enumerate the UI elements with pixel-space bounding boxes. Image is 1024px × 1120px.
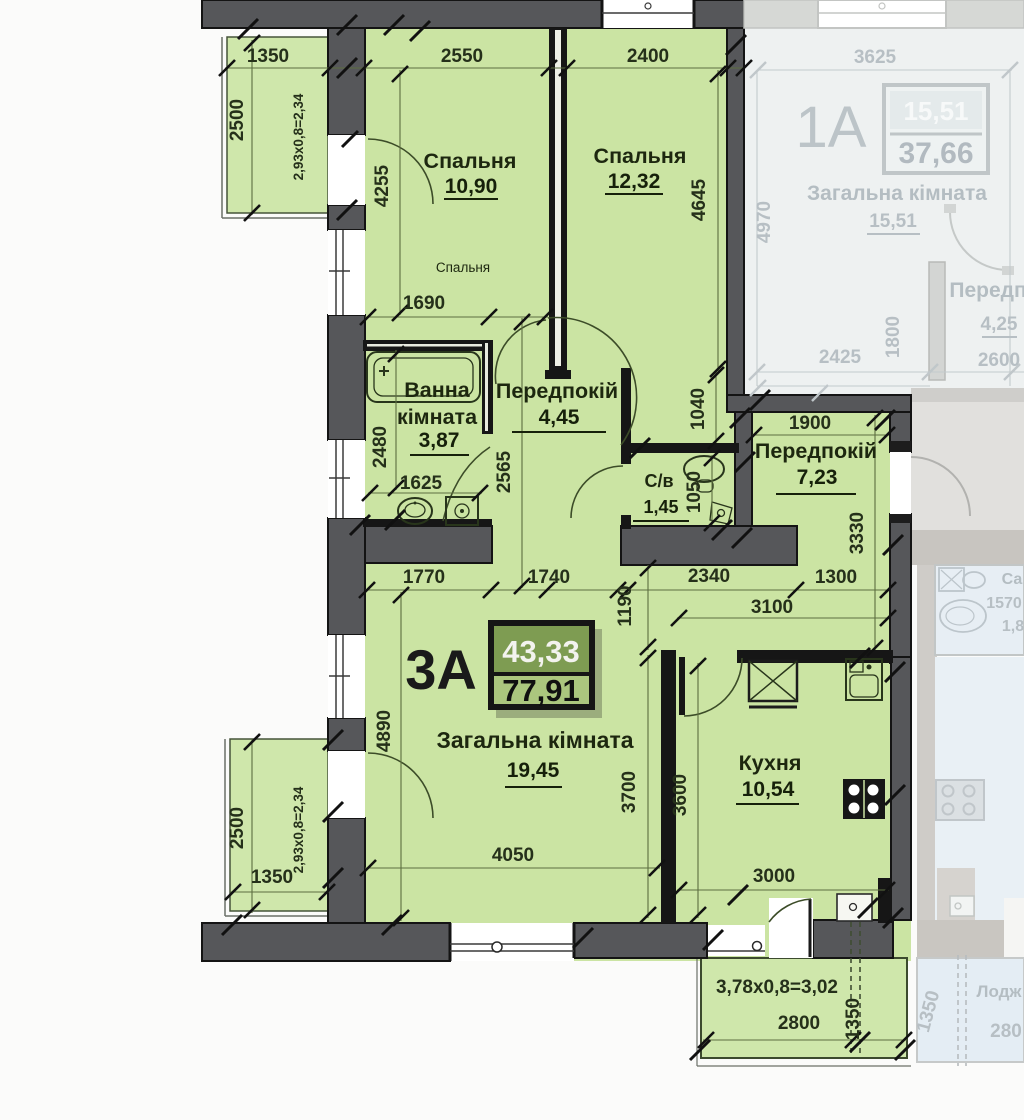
- svg-text:1190: 1190: [615, 585, 636, 626]
- svg-text:2,93х0,8=2,34: 2,93х0,8=2,34: [291, 786, 306, 873]
- svg-text:4,25: 4,25: [981, 314, 1018, 335]
- svg-text:10,54: 10,54: [742, 778, 795, 801]
- svg-text:2600: 2600: [978, 350, 1020, 371]
- svg-text:Загальна кімната: Загальна кімната: [436, 727, 633, 753]
- svg-text:1900: 1900: [789, 413, 831, 434]
- svg-text:1300: 1300: [815, 567, 857, 588]
- svg-text:4970: 4970: [754, 201, 775, 243]
- svg-text:3625: 3625: [854, 47, 897, 68]
- svg-text:2480: 2480: [370, 426, 391, 468]
- svg-text:4645: 4645: [689, 178, 710, 221]
- svg-text:3,78х0,8=3,02: 3,78х0,8=3,02: [716, 977, 838, 998]
- svg-text:3700: 3700: [619, 771, 640, 813]
- svg-text:3,87: 3,87: [419, 429, 460, 452]
- svg-text:Лодж: Лодж: [977, 982, 1023, 1001]
- svg-text:2500: 2500: [227, 807, 248, 849]
- svg-text:3000: 3000: [753, 866, 795, 887]
- svg-text:3100: 3100: [751, 597, 793, 618]
- svg-text:280: 280: [990, 1021, 1022, 1042]
- svg-text:4255: 4255: [372, 164, 393, 207]
- svg-text:10,90: 10,90: [445, 175, 498, 198]
- svg-text:Кухня: Кухня: [739, 751, 802, 775]
- svg-text:кімната: кімната: [397, 405, 478, 429]
- svg-text:Спальня: Спальня: [436, 260, 490, 275]
- svg-text:Передп: Передп: [949, 279, 1024, 302]
- svg-text:1050: 1050: [684, 471, 705, 513]
- svg-text:1,45: 1,45: [643, 497, 678, 517]
- svg-text:Передпокій: Передпокій: [496, 379, 618, 403]
- svg-text:2565: 2565: [494, 450, 515, 493]
- svg-text:1,8: 1,8: [1002, 618, 1024, 635]
- svg-text:Са: Са: [1002, 571, 1023, 588]
- svg-text:2425: 2425: [819, 347, 862, 368]
- svg-text:Ванна: Ванна: [404, 378, 470, 402]
- svg-text:2550: 2550: [441, 46, 483, 67]
- svg-text:Спальня: Спальня: [594, 144, 687, 168]
- svg-text:15,51: 15,51: [869, 211, 917, 232]
- svg-text:1350: 1350: [247, 46, 289, 67]
- svg-text:19,45: 19,45: [507, 759, 560, 782]
- svg-text:1350: 1350: [251, 867, 293, 888]
- svg-text:2340: 2340: [688, 566, 730, 587]
- svg-text:37,66: 37,66: [898, 137, 973, 170]
- svg-text:3600: 3600: [670, 774, 691, 816]
- svg-text:Спальня: Спальня: [424, 149, 517, 173]
- svg-text:2800: 2800: [778, 1013, 820, 1034]
- svg-text:1А: 1А: [796, 95, 867, 160]
- svg-text:3330: 3330: [847, 512, 868, 554]
- svg-text:4050: 4050: [492, 845, 534, 866]
- svg-text:1625: 1625: [400, 473, 443, 494]
- svg-text:7,23: 7,23: [797, 466, 838, 489]
- svg-text:15,51: 15,51: [903, 96, 968, 126]
- svg-text:1690: 1690: [403, 293, 445, 314]
- svg-text:3А: 3А: [405, 638, 477, 701]
- svg-text:2,93х0,8=2,34: 2,93х0,8=2,34: [291, 93, 306, 180]
- svg-text:43,33: 43,33: [502, 634, 580, 669]
- svg-text:1800: 1800: [883, 316, 904, 358]
- svg-text:Загальна кімната: Загальна кімната: [807, 182, 987, 205]
- svg-text:2500: 2500: [227, 99, 248, 141]
- svg-text:2400: 2400: [627, 46, 669, 67]
- svg-text:1740: 1740: [528, 567, 570, 588]
- svg-text:1770: 1770: [403, 567, 445, 588]
- svg-text:4,45: 4,45: [539, 406, 580, 429]
- svg-text:12,32: 12,32: [608, 170, 661, 193]
- svg-text:1350: 1350: [843, 998, 864, 1040]
- svg-text:77,91: 77,91: [502, 673, 580, 708]
- svg-text:С/в: С/в: [644, 471, 673, 491]
- svg-text:1040: 1040: [688, 388, 709, 430]
- svg-text:1570: 1570: [986, 595, 1022, 612]
- svg-text:4890: 4890: [374, 710, 395, 752]
- svg-text:Передпокій: Передпокій: [755, 439, 877, 463]
